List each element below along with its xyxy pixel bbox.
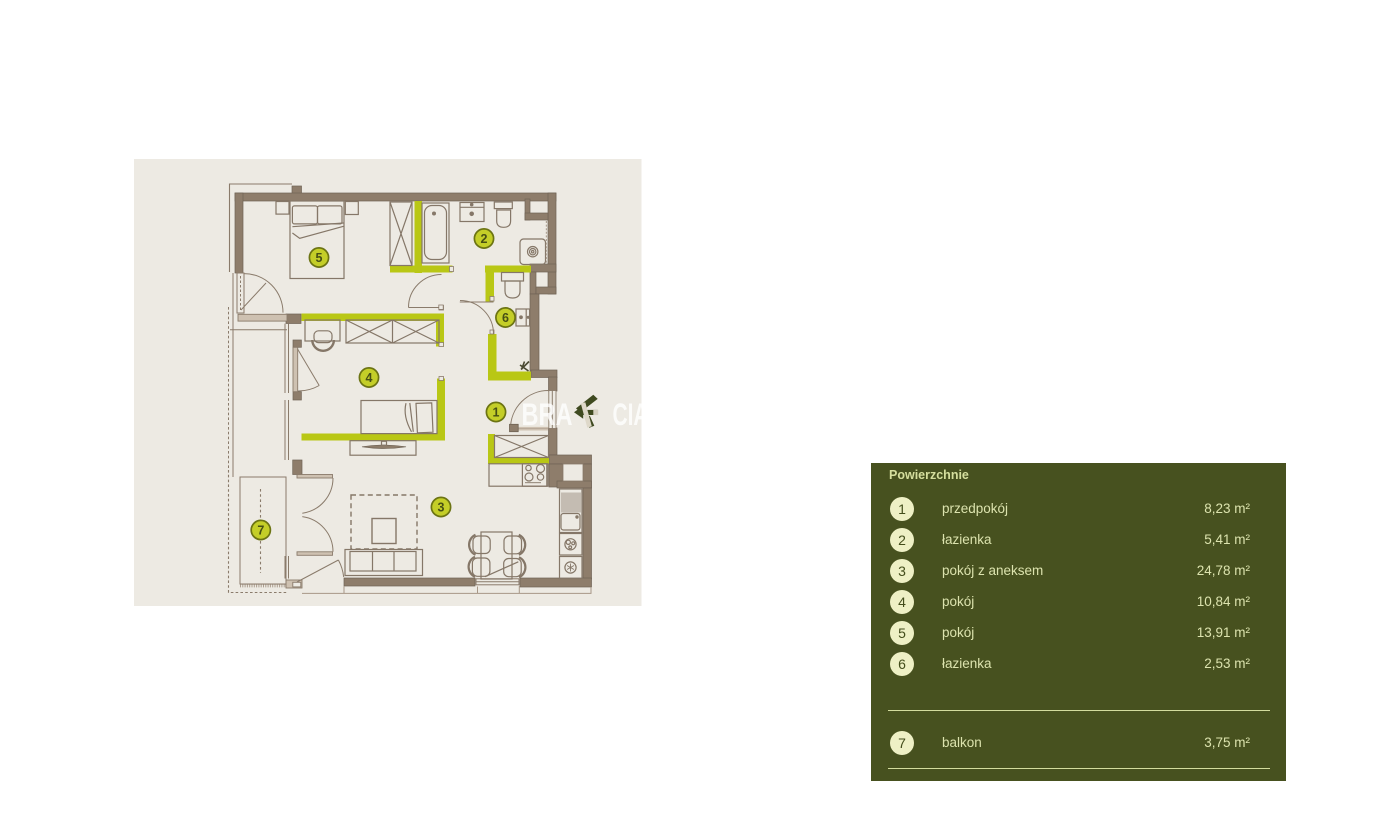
svg-text:4: 4 — [366, 371, 373, 385]
svg-text:CIA: CIA — [613, 396, 643, 432]
svg-text:1: 1 — [493, 406, 500, 420]
svg-text:7: 7 — [257, 524, 264, 538]
svg-text:3: 3 — [438, 501, 445, 515]
svg-text:5: 5 — [316, 251, 323, 265]
svg-text:BRA: BRA — [522, 396, 573, 432]
svg-text:2: 2 — [481, 232, 488, 246]
svg-text:6: 6 — [502, 311, 509, 325]
